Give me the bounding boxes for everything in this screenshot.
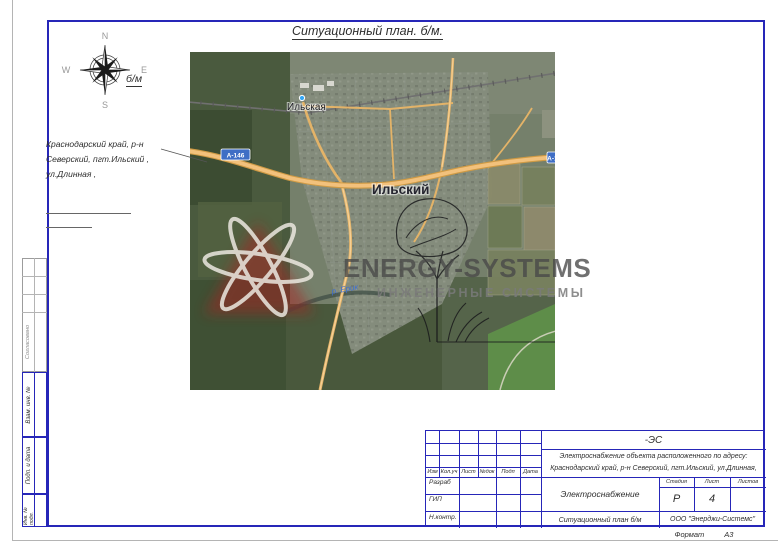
inv-podl-label: Инв. № подл. bbox=[24, 494, 34, 525]
sheet-header: Лист bbox=[694, 477, 730, 487]
blank-signature-line-2 bbox=[46, 227, 92, 228]
system-title: Электроснабжение bbox=[541, 477, 659, 511]
page-title-text: Ситуационный план. б/м. bbox=[292, 24, 443, 40]
rev-header-koluch: Кол.уч bbox=[439, 467, 459, 477]
stage-value: Р bbox=[659, 487, 694, 511]
compass-s-label: S bbox=[102, 100, 108, 110]
blank-signature-line-1 bbox=[46, 213, 131, 214]
org-name: ООО "Энерджи-Системс" bbox=[659, 511, 766, 528]
stage-header: Стадия bbox=[659, 477, 694, 487]
agreed-label: Согласовано bbox=[23, 313, 33, 371]
rev-header-list: Лист bbox=[459, 467, 478, 477]
vzam-inv-label: Взам. инв. № bbox=[24, 375, 34, 435]
town-label: Ильский bbox=[372, 182, 429, 197]
object-description: Электроснабжение объекта расположенного … bbox=[542, 451, 765, 474]
compass-n-label: N bbox=[102, 31, 109, 41]
station-label: Ильская bbox=[287, 102, 326, 113]
format-label: Формат bbox=[675, 530, 705, 539]
role-nkontr: Н.контр. bbox=[429, 514, 457, 521]
role-razrab: Разраб bbox=[429, 479, 451, 486]
doc-code: -ЭС bbox=[541, 431, 766, 449]
drawing-sheet: Ситуационный план. б/м. bbox=[0, 0, 778, 550]
sheets-total-header: Листов bbox=[730, 477, 766, 487]
address-line-1: Краснодарский край, р-н bbox=[46, 137, 176, 152]
compass-rose-icon: N E S W bbox=[58, 28, 153, 110]
sheet-value: 4 bbox=[694, 487, 730, 511]
road-badge: А-146 bbox=[221, 149, 250, 160]
watermark-title: ENERGY-SYSTEMS bbox=[343, 253, 591, 284]
rev-header-izm: Изм bbox=[426, 467, 439, 477]
rev-header-podp: Подп bbox=[496, 467, 520, 477]
format-value: А3 bbox=[724, 530, 733, 539]
sheet-title: Ситуационный план б/м bbox=[541, 511, 659, 528]
compass-w-label: W bbox=[62, 65, 71, 75]
address-line-3: ул.Длинная , bbox=[46, 167, 176, 182]
sheets-total-value bbox=[730, 487, 766, 511]
svg-text:А-146: А-146 bbox=[547, 156, 555, 163]
rev-header-data: Дата bbox=[520, 467, 541, 477]
sheet-edge-bottom bbox=[12, 540, 778, 541]
podp-data-label: Подп. и дата bbox=[24, 439, 34, 492]
watermark-subtitle: ИНЖЕНЕРНЫЕ СИСТЕМЫ bbox=[377, 286, 586, 300]
svg-text:А-146: А-146 bbox=[227, 153, 245, 160]
satellite-map: А-146 А-146 Ильская Ильский р. Ерик bbox=[190, 52, 555, 390]
title-block: Изм Кол.уч Лист №док Подп Дата Разраб ГИ… bbox=[425, 430, 765, 527]
compass-scale-note: б/м bbox=[126, 73, 142, 85]
role-gip: ГИП bbox=[429, 496, 442, 503]
sheet-edge-left bbox=[12, 0, 13, 540]
object-line-1: Электроснабжение объекта расположенного … bbox=[542, 451, 765, 463]
object-line-2: Краснодарский край, р-н Северский, пгт.И… bbox=[542, 463, 765, 475]
page-title: Ситуационный план. б/м. bbox=[285, 24, 450, 38]
road-badge-partial: А-146 bbox=[547, 152, 555, 163]
rev-header-ndok: №док bbox=[478, 467, 496, 477]
format-note: Формат А3 bbox=[648, 530, 760, 539]
address-note: Краснодарский край, р-н Северский, пгт.И… bbox=[46, 137, 176, 182]
station-marker bbox=[299, 95, 304, 100]
address-line-2: Северский, пгт.Ильский , bbox=[46, 152, 176, 167]
